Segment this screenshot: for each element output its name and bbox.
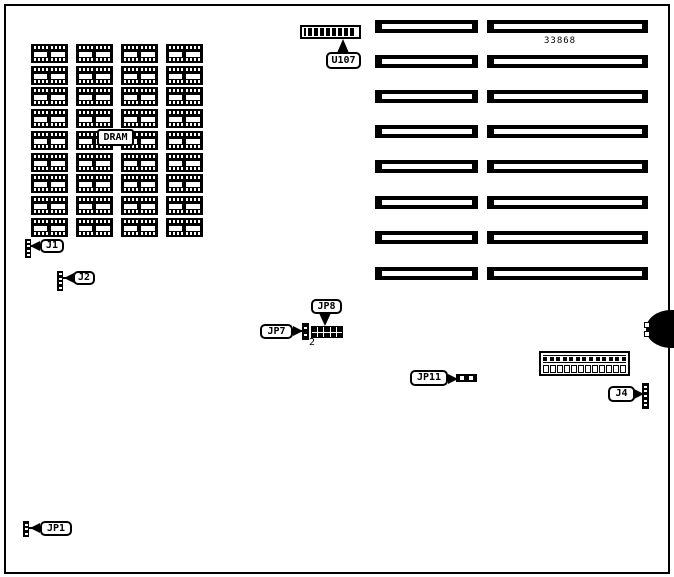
chip-pin: [51, 176, 53, 179]
chip-pin: [128, 167, 130, 170]
chip-pin: [149, 101, 151, 104]
chip-body-bar: [186, 161, 200, 166]
chip-pin: [42, 232, 44, 235]
chip-pin: [145, 176, 147, 179]
chip-pin: [59, 46, 61, 49]
slot-contact-strip: [494, 129, 642, 134]
chip-pin: [190, 101, 192, 104]
power-connector-cell: [599, 365, 605, 373]
chip-pin: [198, 210, 200, 213]
chip-pin: [51, 101, 53, 104]
chip-pin: [38, 155, 40, 158]
chip-pin: [136, 133, 138, 136]
chip-pin: [145, 210, 147, 213]
chip-pin: [145, 111, 147, 114]
chip-pin-row: [34, 188, 65, 191]
chip-body-bar: [34, 139, 47, 144]
chip-pin: [145, 123, 147, 126]
chip-pin: [198, 176, 200, 179]
chip-pin: [177, 167, 179, 170]
chip-pin: [104, 210, 106, 213]
dram-chip: [31, 66, 68, 85]
chip-pin: [100, 167, 102, 170]
chip-pin: [91, 123, 93, 126]
chip-pin: [59, 232, 61, 235]
chip-pin: [149, 133, 151, 136]
chip-pin: [177, 46, 179, 49]
chip-pin: [100, 89, 102, 92]
j2-label: J2: [73, 271, 95, 285]
chip-pin: [63, 58, 65, 61]
chip-pin: [96, 46, 98, 49]
power-connector-pin-row: [543, 355, 626, 363]
chip-pin: [46, 89, 48, 92]
chip-pin: [186, 145, 188, 148]
chip-body-bar: [141, 117, 155, 122]
chip-pin: [128, 89, 130, 92]
power-connector-cell: [571, 365, 577, 373]
chip-pin: [34, 145, 36, 148]
chip-body-bar: [141, 204, 155, 209]
part-number-text: 33868: [544, 36, 576, 46]
chip-pin: [100, 198, 102, 201]
chip-body-bar: [51, 117, 65, 122]
chip-pin: [124, 232, 126, 235]
chip-pin: [124, 111, 126, 114]
chip-pin: [108, 198, 110, 201]
chip-pin: [169, 145, 171, 148]
chip-pin-row: [34, 145, 65, 148]
isa-slot: [487, 125, 648, 138]
chip-pin: [141, 155, 143, 158]
chip-pin: [136, 145, 138, 148]
chip-body-bar: [141, 226, 155, 231]
chip-pin: [190, 46, 192, 49]
isa-slot: [487, 231, 648, 244]
chip-pin: [145, 198, 147, 201]
chip-pin: [42, 111, 44, 114]
chip-pin: [169, 58, 171, 61]
chip-pin: [38, 220, 40, 223]
chip-pin: [124, 123, 126, 126]
chip-pin: [198, 101, 200, 104]
chip-pin: [177, 58, 179, 61]
chip-pin: [59, 210, 61, 213]
chip-pin: [145, 232, 147, 235]
chip-pin: [96, 80, 98, 83]
chip-pin: [51, 68, 53, 71]
isa-slot: [375, 160, 478, 173]
chip-body-bar: [34, 117, 47, 122]
chip-pin: [145, 58, 147, 61]
jp8-cell: [318, 327, 323, 332]
chip-body-bar: [96, 74, 110, 79]
chip-pin: [83, 80, 85, 83]
chip-body-bar: [186, 226, 200, 231]
dram-chip: [166, 153, 203, 172]
chip-pin: [149, 232, 151, 235]
chip-pin: [190, 133, 192, 136]
chip-pin: [198, 89, 200, 92]
chip-pin: [181, 80, 183, 83]
chip-pin-row: [34, 111, 65, 114]
chip-pin: [96, 111, 98, 114]
chip-pin: [108, 80, 110, 83]
chip-pin: [169, 123, 171, 126]
chip-pin: [149, 68, 151, 71]
chip-pin: [34, 46, 36, 49]
jp8-cell: [331, 327, 336, 332]
chip-pin: [100, 188, 102, 191]
chip-pin: [91, 176, 93, 179]
chip-pin: [177, 198, 179, 201]
chip-pin: [181, 123, 183, 126]
chip-pin: [79, 133, 81, 136]
chip-body-bar: [141, 182, 155, 187]
chip-pin: [132, 198, 134, 201]
chip-pin: [87, 123, 89, 126]
chip-body-bar: [96, 226, 110, 231]
chip-pin: [34, 167, 36, 170]
slot-contact-strip: [382, 59, 472, 64]
chip-body-bar: [34, 182, 47, 187]
chip-pin-row: [124, 89, 155, 92]
chip-pin: [124, 155, 126, 158]
chip-pin: [38, 111, 40, 114]
chip-pin: [46, 68, 48, 71]
dram-chip: [31, 218, 68, 237]
chip-pin: [153, 101, 155, 104]
u107-pin: [332, 28, 336, 36]
chip-pin: [141, 80, 143, 83]
chip-pin: [198, 58, 200, 61]
chip-pin: [153, 167, 155, 170]
chip-pin: [55, 133, 57, 136]
chip-body-bar: [51, 182, 65, 187]
chip-pin-row: [169, 220, 200, 223]
u107-pin: [338, 28, 342, 36]
slot-contact-strip: [494, 271, 642, 276]
dram-chip: [121, 44, 158, 63]
chip-pin: [108, 101, 110, 104]
chip-pin-row: [169, 101, 200, 104]
chip-body-bar: [124, 182, 137, 187]
chip-body-bar: [79, 74, 92, 79]
chip-pin: [42, 167, 44, 170]
chip-pin: [83, 188, 85, 191]
chip-pin: [132, 210, 134, 213]
chip-pin: [173, 232, 175, 235]
chip-pin: [42, 68, 44, 71]
chip-pin: [55, 220, 57, 223]
chip-pin: [79, 46, 81, 49]
j2-header-pin: [59, 278, 62, 280]
chip-pin: [145, 145, 147, 148]
chip-pin: [194, 133, 196, 136]
chip-pin: [149, 176, 151, 179]
chip-pin: [38, 176, 40, 179]
chip-pin: [190, 198, 192, 201]
chip-pin: [42, 188, 44, 191]
chip-pin: [190, 145, 192, 148]
chip-pin: [42, 101, 44, 104]
chip-body-bar: [169, 95, 182, 100]
chip-pin: [55, 80, 57, 83]
chip-pin: [194, 58, 196, 61]
chip-pin: [190, 176, 192, 179]
chip-pin: [79, 101, 81, 104]
chip-pin: [194, 80, 196, 83]
isa-slot: [487, 196, 648, 209]
chip-body-bar: [51, 139, 65, 144]
chip-pin: [141, 46, 143, 49]
chip-pin: [177, 188, 179, 191]
chip-pin: [108, 210, 110, 213]
chip-pin: [91, 155, 93, 158]
chip-pin: [100, 123, 102, 126]
dram-chip: [31, 44, 68, 63]
chip-pin: [124, 176, 126, 179]
chip-pin: [79, 198, 81, 201]
slot-contact-strip: [494, 164, 642, 169]
chip-pin: [96, 101, 98, 104]
dram-chip: [166, 87, 203, 106]
j1-header-pin: [27, 254, 30, 256]
u107-pin: [320, 28, 324, 36]
chip-pin: [145, 155, 147, 158]
chip-pin-row: [79, 220, 110, 223]
chip-pin: [177, 232, 179, 235]
power-connector-pin: [563, 357, 567, 361]
chip-pin: [79, 80, 81, 83]
chip-pin: [190, 111, 192, 114]
chip-pin: [59, 176, 61, 179]
chip-pin: [63, 111, 65, 114]
chip-pin: [128, 46, 130, 49]
chip-pin-row: [79, 111, 110, 114]
chip-body-bar: [141, 74, 155, 79]
chip-pin-row: [169, 123, 200, 126]
chip-pin: [108, 220, 110, 223]
chip-body-bar: [34, 161, 47, 166]
chip-pin: [186, 176, 188, 179]
chip-body-bar: [124, 95, 137, 100]
chip-body-bar: [79, 117, 92, 122]
chip-pin: [136, 188, 138, 191]
chip-pin: [153, 58, 155, 61]
power-connector-pin: [596, 357, 600, 361]
chip-pin: [181, 89, 183, 92]
chip-pin: [51, 133, 53, 136]
chip-pin: [51, 232, 53, 235]
dram-chip: [166, 196, 203, 215]
chip-pin: [87, 145, 89, 148]
chip-pin: [104, 188, 106, 191]
chip-pin-row: [124, 220, 155, 223]
chip-pin: [124, 210, 126, 213]
chip-pin: [91, 101, 93, 104]
dram-chip: [121, 196, 158, 215]
chip-pin: [108, 111, 110, 114]
chip-pin-row: [34, 220, 65, 223]
dram-chip: [76, 44, 113, 63]
chip-body-bar: [79, 226, 92, 231]
chip-pin: [169, 89, 171, 92]
chip-pin: [173, 167, 175, 170]
chip-pin: [51, 111, 53, 114]
chip-pin-row: [79, 176, 110, 179]
chip-pin: [149, 123, 151, 126]
chip-pin: [83, 89, 85, 92]
chip-pin: [149, 155, 151, 158]
chip-pin: [198, 80, 200, 83]
chip-pin: [46, 220, 48, 223]
chip-pin: [153, 155, 155, 158]
chip-pin: [136, 80, 138, 83]
chip-pin: [169, 155, 171, 158]
chip-pin: [100, 68, 102, 71]
chip-pin: [79, 58, 81, 61]
chip-pin: [128, 188, 130, 191]
chip-pin: [79, 220, 81, 223]
j4-label: J4: [608, 386, 635, 402]
chip-pin: [87, 198, 89, 201]
chip-pin-row: [169, 111, 200, 114]
slot-contact-strip: [382, 235, 472, 240]
chip-pin: [34, 89, 36, 92]
chip-pin: [169, 188, 171, 191]
chip-pin: [55, 210, 57, 213]
j1-label: J1: [40, 239, 64, 253]
chip-pin: [38, 46, 40, 49]
chip-pin-row: [34, 68, 65, 71]
chip-pin: [108, 58, 110, 61]
chip-pin: [100, 80, 102, 83]
power-connector-pin: [556, 357, 560, 361]
chip-pin: [190, 123, 192, 126]
chip-body-bar: [51, 161, 65, 166]
isa-slot: [375, 231, 478, 244]
chip-pin: [96, 220, 98, 223]
isa-slot: [375, 267, 478, 280]
power-connector-cell: [543, 365, 549, 373]
j4-header-pin: [644, 390, 647, 392]
chip-pin: [181, 58, 183, 61]
chip-pin: [169, 133, 171, 136]
chip-pin: [87, 167, 89, 170]
chip-pin: [79, 188, 81, 191]
chip-pin: [108, 68, 110, 71]
dram-chip: [76, 196, 113, 215]
chip-pin: [108, 46, 110, 49]
chip-body-bar: [79, 139, 92, 144]
chip-body-bar: [96, 161, 110, 166]
chip-pin: [100, 58, 102, 61]
chip-pin: [198, 198, 200, 201]
chip-pin: [186, 232, 188, 235]
slot-contact-strip: [494, 59, 642, 64]
chip-pin: [51, 80, 53, 83]
chip-pin: [59, 155, 61, 158]
chip-pin: [190, 89, 192, 92]
chip-pin: [46, 188, 48, 191]
chip-pin: [153, 176, 155, 179]
chip-pin: [153, 145, 155, 148]
isa-slot: [487, 160, 648, 173]
chip-pin: [87, 111, 89, 114]
chip-pin: [46, 101, 48, 104]
chip-pin: [177, 155, 179, 158]
chip-pin: [136, 210, 138, 213]
chip-pin: [198, 232, 200, 235]
dram-chip: [166, 66, 203, 85]
chip-body-bar: [186, 139, 200, 144]
chip-body-bar: [79, 204, 92, 209]
callout-arrow-jp1: [30, 523, 40, 533]
chip-pin: [173, 123, 175, 126]
chip-pin: [198, 68, 200, 71]
chip-pin: [63, 210, 65, 213]
chip-pin: [59, 133, 61, 136]
slot-contact-strip: [382, 271, 472, 276]
jp7-jumper: [302, 323, 309, 340]
chip-pin: [83, 101, 85, 104]
chip-body-bar: [34, 204, 47, 209]
chip-pin: [55, 176, 57, 179]
j4-header-pin: [644, 404, 647, 406]
chip-pin: [194, 188, 196, 191]
chip-pin: [63, 155, 65, 158]
chip-pin: [42, 80, 44, 83]
chip-pin-row: [124, 232, 155, 235]
chip-pin: [145, 167, 147, 170]
chip-pin: [108, 167, 110, 170]
callout-arrow-j1: [30, 241, 40, 251]
chip-pin: [177, 68, 179, 71]
j1-header-pin: [27, 241, 30, 243]
chip-pin: [59, 220, 61, 223]
jp1-label: JP1: [40, 521, 72, 536]
chip-pin: [42, 198, 44, 201]
chip-pin: [79, 210, 81, 213]
chip-pin: [136, 176, 138, 179]
isa-slot: [375, 20, 478, 33]
chip-pin-row: [34, 133, 65, 136]
j4-header-pin: [644, 400, 647, 402]
chip-pin: [186, 210, 188, 213]
chip-pin: [141, 123, 143, 126]
j4-header-pin: [644, 395, 647, 397]
chip-pin: [186, 111, 188, 114]
chip-pin: [55, 145, 57, 148]
chip-pin-row: [79, 123, 110, 126]
chip-pin-row: [79, 155, 110, 158]
power-connector-cell: [620, 365, 626, 373]
chip-pin: [96, 145, 98, 148]
chip-pin: [153, 89, 155, 92]
chip-pin: [177, 111, 179, 114]
jp7-label: JP7: [260, 324, 293, 339]
chip-pin: [63, 133, 65, 136]
chip-pin: [34, 58, 36, 61]
chip-pin-row: [169, 155, 200, 158]
chip-pin: [38, 133, 40, 136]
chip-pin: [59, 89, 61, 92]
chip-pin: [83, 133, 85, 136]
chip-body-bar: [96, 182, 110, 187]
chip-pin: [100, 232, 102, 235]
chip-pin: [104, 89, 106, 92]
